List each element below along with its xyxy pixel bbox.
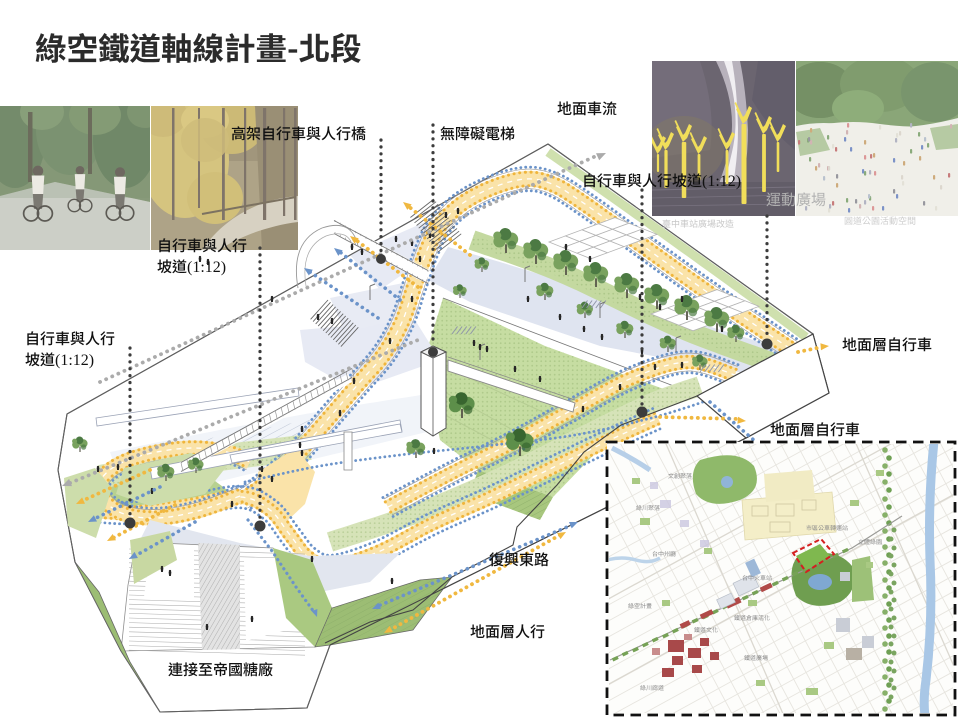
- svg-text:(1:12): (1:12): [55, 352, 94, 369]
- svg-text:(1:12): (1:12): [187, 259, 226, 276]
- svg-text:(1:12): (1:12): [702, 173, 741, 190]
